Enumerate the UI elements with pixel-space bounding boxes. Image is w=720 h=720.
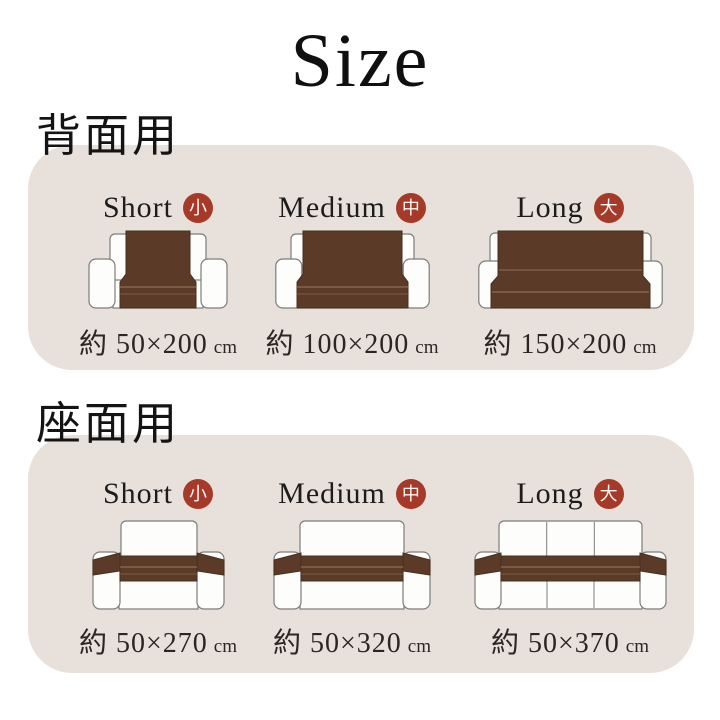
size-text: 約 100×200cm	[265, 322, 438, 362]
size-badge-medium: 中	[396, 193, 426, 223]
cover-seat-band	[501, 556, 640, 581]
size-text: 約 150×200cm	[483, 322, 656, 362]
size-value: 約 150×200	[483, 329, 627, 360]
size-badge-small: 小	[183, 193, 213, 223]
section-heading-backrest: 背面用	[36, 114, 180, 159]
variant-label-row: Long 大	[516, 192, 623, 224]
size-unit: cm	[408, 636, 431, 657]
size-value: 約 50×320	[273, 628, 402, 659]
size-badge-small: 小	[183, 479, 213, 509]
cover-shape	[297, 231, 408, 308]
variant-label-row: Medium 中	[278, 192, 426, 224]
size-text: 約 50×200cm	[79, 322, 237, 362]
variant-column-back-long: Long 大 約 150×200cm	[460, 145, 680, 370]
variant-label-row: Short 小	[103, 478, 213, 510]
size-unit: cm	[626, 636, 649, 657]
size-text: 約 50×270cm	[79, 621, 237, 661]
page-title: Size	[0, 22, 720, 102]
cover-shape	[120, 231, 196, 308]
size-value: 約 50×200	[79, 329, 208, 360]
size-value: 約 50×370	[491, 628, 620, 659]
variant-label-row: Long 大	[516, 478, 623, 510]
variant-column-back-medium: Medium 中 約 100×200cm	[242, 145, 462, 370]
variant-label: Medium	[278, 477, 386, 511]
size-unit: cm	[415, 337, 438, 358]
size-unit: cm	[214, 636, 237, 657]
sofa-seat-cover-short-illustration	[91, 519, 226, 611]
variant-column-seat-short: Short 小 約 50×270cm	[48, 435, 268, 673]
variant-label-row: Short 小	[103, 192, 213, 224]
variant-label: Short	[103, 477, 173, 511]
variant-label: Long	[516, 191, 583, 225]
size-value: 約 50×270	[79, 628, 208, 659]
cover-seat-band	[120, 556, 197, 581]
sofa-seat-cover-medium-illustration	[272, 519, 432, 611]
size-badge-medium: 中	[396, 479, 426, 509]
backrest-section-panel: Short 小 約 50×200cm Medium 中	[28, 145, 694, 370]
sofa-seat-cover-long-illustration	[473, 519, 668, 611]
cover-seat-band	[301, 556, 403, 581]
section-heading-seat: 座面用	[36, 402, 180, 447]
sofa-back-cover-short-illustration	[88, 230, 228, 310]
size-badge-large: 大	[594, 193, 624, 223]
seat-section-panel: Short 小 約 50×270cm Medium 中	[28, 435, 694, 673]
size-unit: cm	[633, 337, 656, 358]
variant-column-back-short: Short 小 約 50×200cm	[48, 145, 268, 370]
size-badge-large: 大	[594, 479, 624, 509]
variant-label: Long	[516, 477, 583, 511]
sofa-back-cover-medium-illustration	[275, 230, 430, 310]
size-unit: cm	[214, 337, 237, 358]
size-value: 約 100×200	[265, 329, 409, 360]
variant-label: Medium	[278, 191, 386, 225]
variant-column-seat-long: Long 大 約 50×370cm	[460, 435, 680, 673]
variant-label: Short	[103, 191, 173, 225]
sofa-back-cover-long-illustration	[478, 230, 663, 310]
size-text: 約 50×370cm	[491, 621, 649, 661]
variant-label-row: Medium 中	[278, 478, 426, 510]
variant-column-seat-medium: Medium 中 約 50×320cm	[242, 435, 462, 673]
size-text: 約 50×320cm	[273, 621, 431, 661]
